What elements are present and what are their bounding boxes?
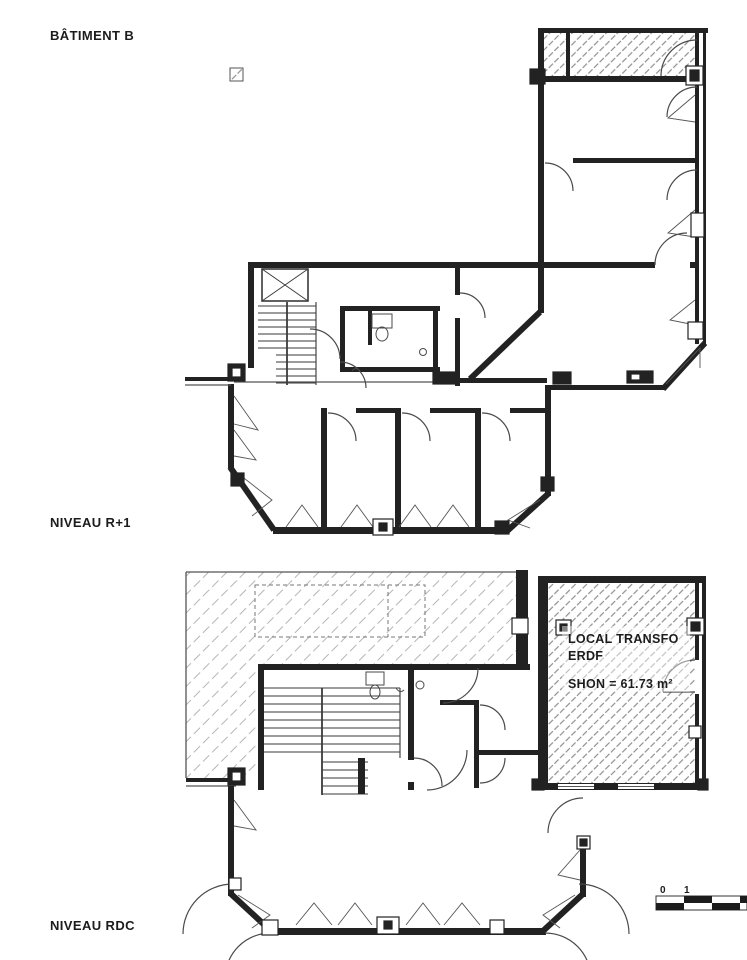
small-hatch-marker: [230, 68, 243, 81]
rdc-window-swings: [234, 800, 580, 928]
r1-thin-lines: [185, 302, 455, 385]
r1-walls: [185, 28, 708, 534]
floor-plan-rdc: LOCAL TRANSFO ERDF SHON = 61.73 m² NIVEA…: [50, 570, 708, 960]
scanned-floor-plan-page: BÂTIMENT B: [0, 0, 747, 960]
rdc-level-label: NIVEAU RDC: [50, 918, 135, 933]
transfo-area-label: SHON = 61.73 m²: [568, 677, 673, 691]
r1-level-label: NIVEAU R+1: [50, 515, 131, 530]
rdc-canted-walls: [230, 893, 584, 931]
floor-plan-r1: NIVEAU R+1: [50, 28, 708, 535]
rdc-fixtures: [366, 672, 424, 699]
r1-canted-walls: [230, 312, 705, 532]
page-title: BÂTIMENT B: [50, 28, 134, 43]
scale-bar: 0 1: [656, 885, 747, 910]
transfo-annotation: LOCAL TRANSFO ERDF SHON = 61.73 m²: [562, 626, 690, 692]
rdc-staircase: [264, 688, 400, 795]
scale-tick-1: 1: [684, 885, 690, 896]
floor-plan-drawing: BÂTIMENT B: [0, 0, 747, 960]
r1-fixtures: [352, 314, 427, 371]
transfo-label-line1: LOCAL TRANSFO: [568, 632, 679, 646]
transfo-label-line2: ERDF: [568, 649, 603, 663]
r1-staircase: [258, 269, 316, 385]
scale-tick-0: 0: [660, 885, 666, 896]
